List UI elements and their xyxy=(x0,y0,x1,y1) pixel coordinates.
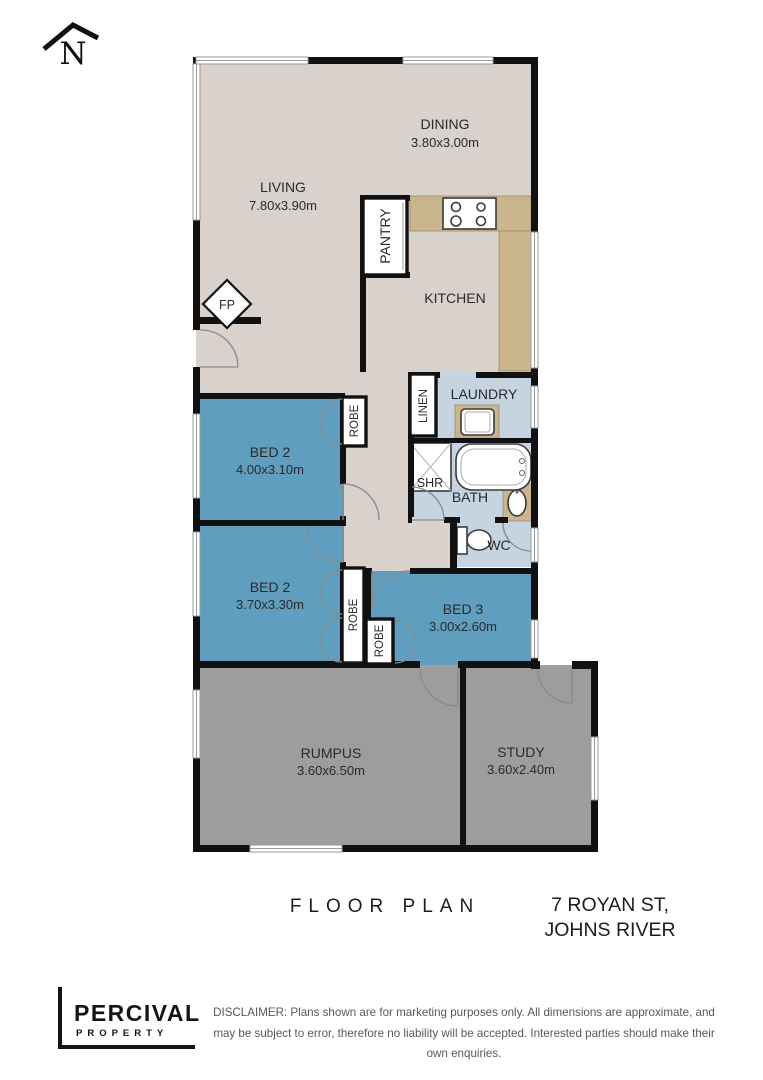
brand-name: PERCIVAL xyxy=(74,1000,195,1027)
bed3-dims: 3.00x2.60m xyxy=(429,619,497,634)
robe-label-bed2b: ROBE xyxy=(348,598,360,631)
study-label: STUDY xyxy=(497,744,545,760)
laundry-label: LAUNDRY xyxy=(451,386,518,402)
bed3-label: BED 3 xyxy=(443,601,484,617)
floor-plan-title: FLOOR PLAN xyxy=(255,896,515,918)
bed2a-dims: 4.00x3.10m xyxy=(236,462,304,477)
robe-label-bed2a: ROBE xyxy=(349,404,361,437)
bed2b-label: BED 2 xyxy=(250,579,291,595)
bed2b-dims: 3.70x3.30m xyxy=(236,597,304,612)
dining-dims: 3.80x3.00m xyxy=(411,135,479,150)
floor-plan-page: N xyxy=(0,0,763,1080)
living-label: LIVING xyxy=(260,179,306,195)
north-indicator: N xyxy=(44,25,98,72)
brand-sub: PROPERTY xyxy=(76,1028,195,1039)
kitchen-label: KITCHEN xyxy=(424,290,485,306)
wc-label: WC xyxy=(487,537,510,553)
shower-label: SHR xyxy=(417,476,443,490)
robe-label-bed3: ROBE xyxy=(374,624,386,657)
study-dims: 3.60x2.40m xyxy=(487,762,555,777)
stove-icon xyxy=(443,198,496,229)
disclaimer: DISCLAIMER: Plans shown are for marketin… xyxy=(205,1003,723,1065)
floor-plan-svg: N xyxy=(0,0,763,880)
rumpus-dims: 3.60x6.50m xyxy=(297,763,365,778)
dining-label: DINING xyxy=(421,116,470,132)
address-line-2: JOHNS RIVER xyxy=(530,918,690,943)
linen-label: LINEN xyxy=(418,389,430,423)
bed2a-label: BED 2 xyxy=(250,444,291,460)
rumpus-label: RUMPUS xyxy=(301,745,362,761)
address-line-1: 7 ROYAN ST, xyxy=(530,893,690,918)
laundry-tub-icon xyxy=(461,409,494,435)
floor-hallway-ext xyxy=(408,517,452,574)
pantry-label: PANTRY xyxy=(377,208,393,264)
north-label: N xyxy=(59,36,86,72)
bathtub-icon xyxy=(456,444,531,490)
kitchen-bench-right xyxy=(499,231,531,371)
bath-label: BATH xyxy=(452,489,488,505)
floor-living-ext xyxy=(196,372,344,394)
basin-icon xyxy=(508,490,526,516)
brand-logo: PERCIVAL PROPERTY xyxy=(58,987,195,1049)
address: 7 ROYAN ST, JOHNS RIVER xyxy=(530,893,690,943)
living-dims: 7.80x3.90m xyxy=(249,198,317,213)
fireplace-label: FP xyxy=(219,298,235,312)
